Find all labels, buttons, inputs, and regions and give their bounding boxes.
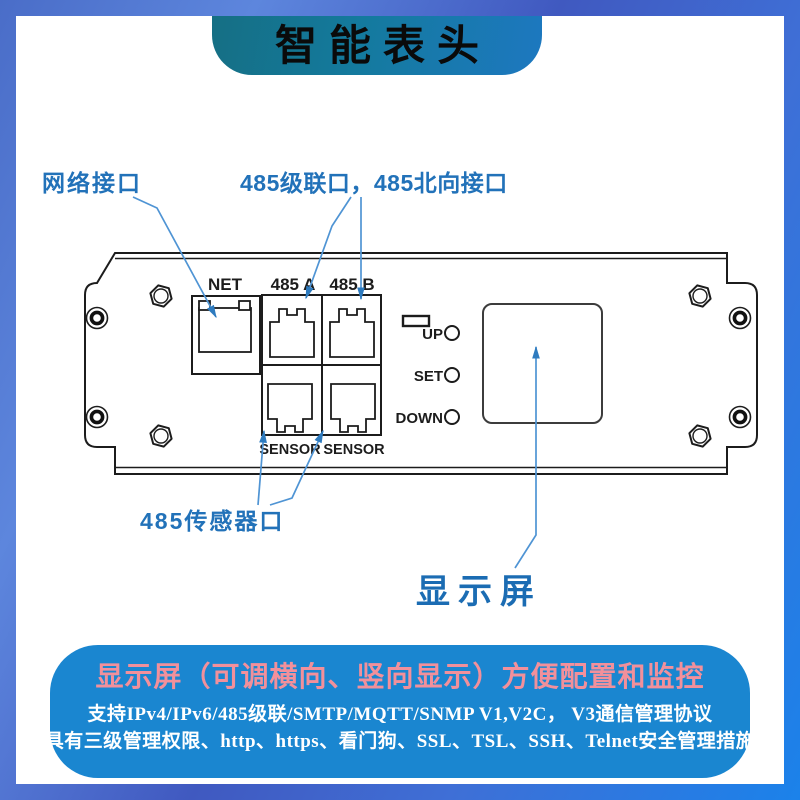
- product-image-frame: 智能表头: [0, 0, 800, 800]
- feature-box: 显示屏（可调横向、竖向显示）方便配置和监控 支持IPv4/IPv6/485级联/…: [50, 645, 750, 778]
- callout-cascade: 485级联口，485北向接口: [240, 170, 508, 196]
- up-button-label: UP: [422, 326, 443, 343]
- down-button: [445, 410, 459, 424]
- screw-hole: [730, 407, 751, 428]
- panel-outline: [85, 253, 757, 474]
- down-button-label: DOWN: [396, 410, 444, 427]
- callout-sensor: 485传感器口: [140, 508, 284, 534]
- net-port-label: NET: [208, 275, 243, 294]
- up-button: [445, 326, 459, 340]
- net-led-right: [239, 301, 250, 310]
- rs485-b-port-label: 485 B: [329, 275, 374, 294]
- callout-network: 网络接口: [42, 170, 142, 196]
- set-button: [445, 368, 459, 382]
- screw-hole: [730, 308, 751, 329]
- feature-line-2: 具有三级管理权限、http、https、看门狗、SSL、TSL、SSH、Teln…: [45, 728, 756, 755]
- feature-line-1: 支持IPv4/IPv6/485级联/SMTP/MQTT/SNMP V1,V2C，…: [88, 701, 713, 728]
- indicator-slot: [403, 316, 429, 326]
- screw-hole: [87, 407, 108, 428]
- set-button-label: SET: [414, 368, 443, 385]
- display-screen: [483, 304, 602, 423]
- sensor-port-label-2: SENSOR: [323, 442, 385, 458]
- callout-display: 显示屏: [416, 573, 542, 611]
- feature-title: 显示屏（可调横向、竖向显示）方便配置和监控: [95, 655, 704, 695]
- screw-hole: [87, 308, 108, 329]
